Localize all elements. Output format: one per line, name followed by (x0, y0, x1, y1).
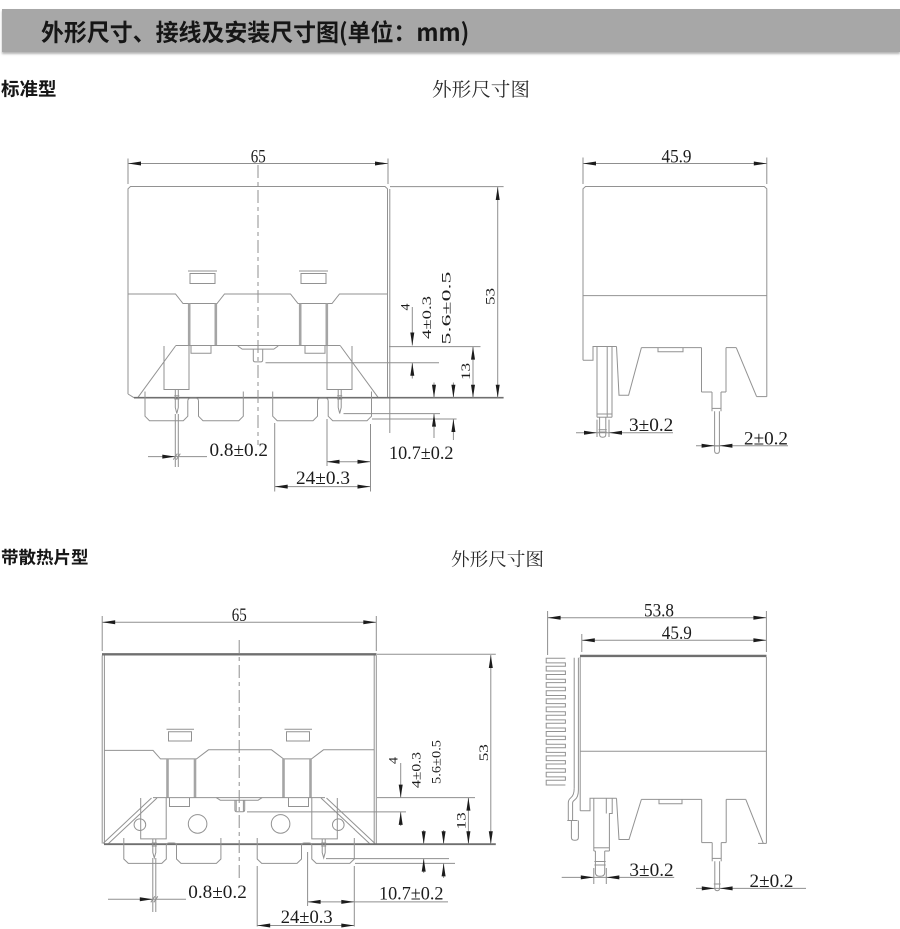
svg-text:3±0.2: 3±0.2 (629, 860, 673, 881)
svg-text:13: 13 (453, 812, 468, 829)
svg-text:10.7±0.2: 10.7±0.2 (389, 443, 454, 464)
svg-text:4: 4 (386, 756, 401, 764)
svg-text:3±0.2: 3±0.2 (629, 415, 673, 436)
svg-text:53: 53 (483, 288, 498, 305)
svg-text:4±0.3: 4±0.3 (419, 296, 434, 339)
svg-text:4: 4 (397, 303, 412, 311)
svg-text:2±0.2: 2±0.2 (750, 871, 794, 892)
svg-text:5.6±0.5: 5.6±0.5 (429, 740, 444, 784)
svg-text:2±0.2: 2±0.2 (744, 429, 788, 450)
svg-text:45.9: 45.9 (662, 147, 692, 168)
svg-text:0.8±0.2: 0.8±0.2 (188, 882, 247, 903)
svg-text:10.7±0.2: 10.7±0.2 (379, 884, 444, 905)
svg-text:4±0.3: 4±0.3 (409, 752, 424, 788)
svg-text:13: 13 (458, 363, 473, 380)
svg-text:53: 53 (476, 744, 491, 761)
svg-text:53.8: 53.8 (644, 601, 674, 622)
svg-text:65: 65 (232, 605, 247, 626)
svg-text:24±0.3: 24±0.3 (281, 907, 333, 928)
svg-text:45.9: 45.9 (662, 623, 692, 644)
svg-text:24±0.3: 24±0.3 (296, 468, 350, 489)
svg-text:5.6±0.5: 5.6±0.5 (438, 272, 453, 345)
svg-text:65: 65 (251, 147, 266, 168)
svg-text:0.8±0.2: 0.8±0.2 (210, 440, 269, 461)
